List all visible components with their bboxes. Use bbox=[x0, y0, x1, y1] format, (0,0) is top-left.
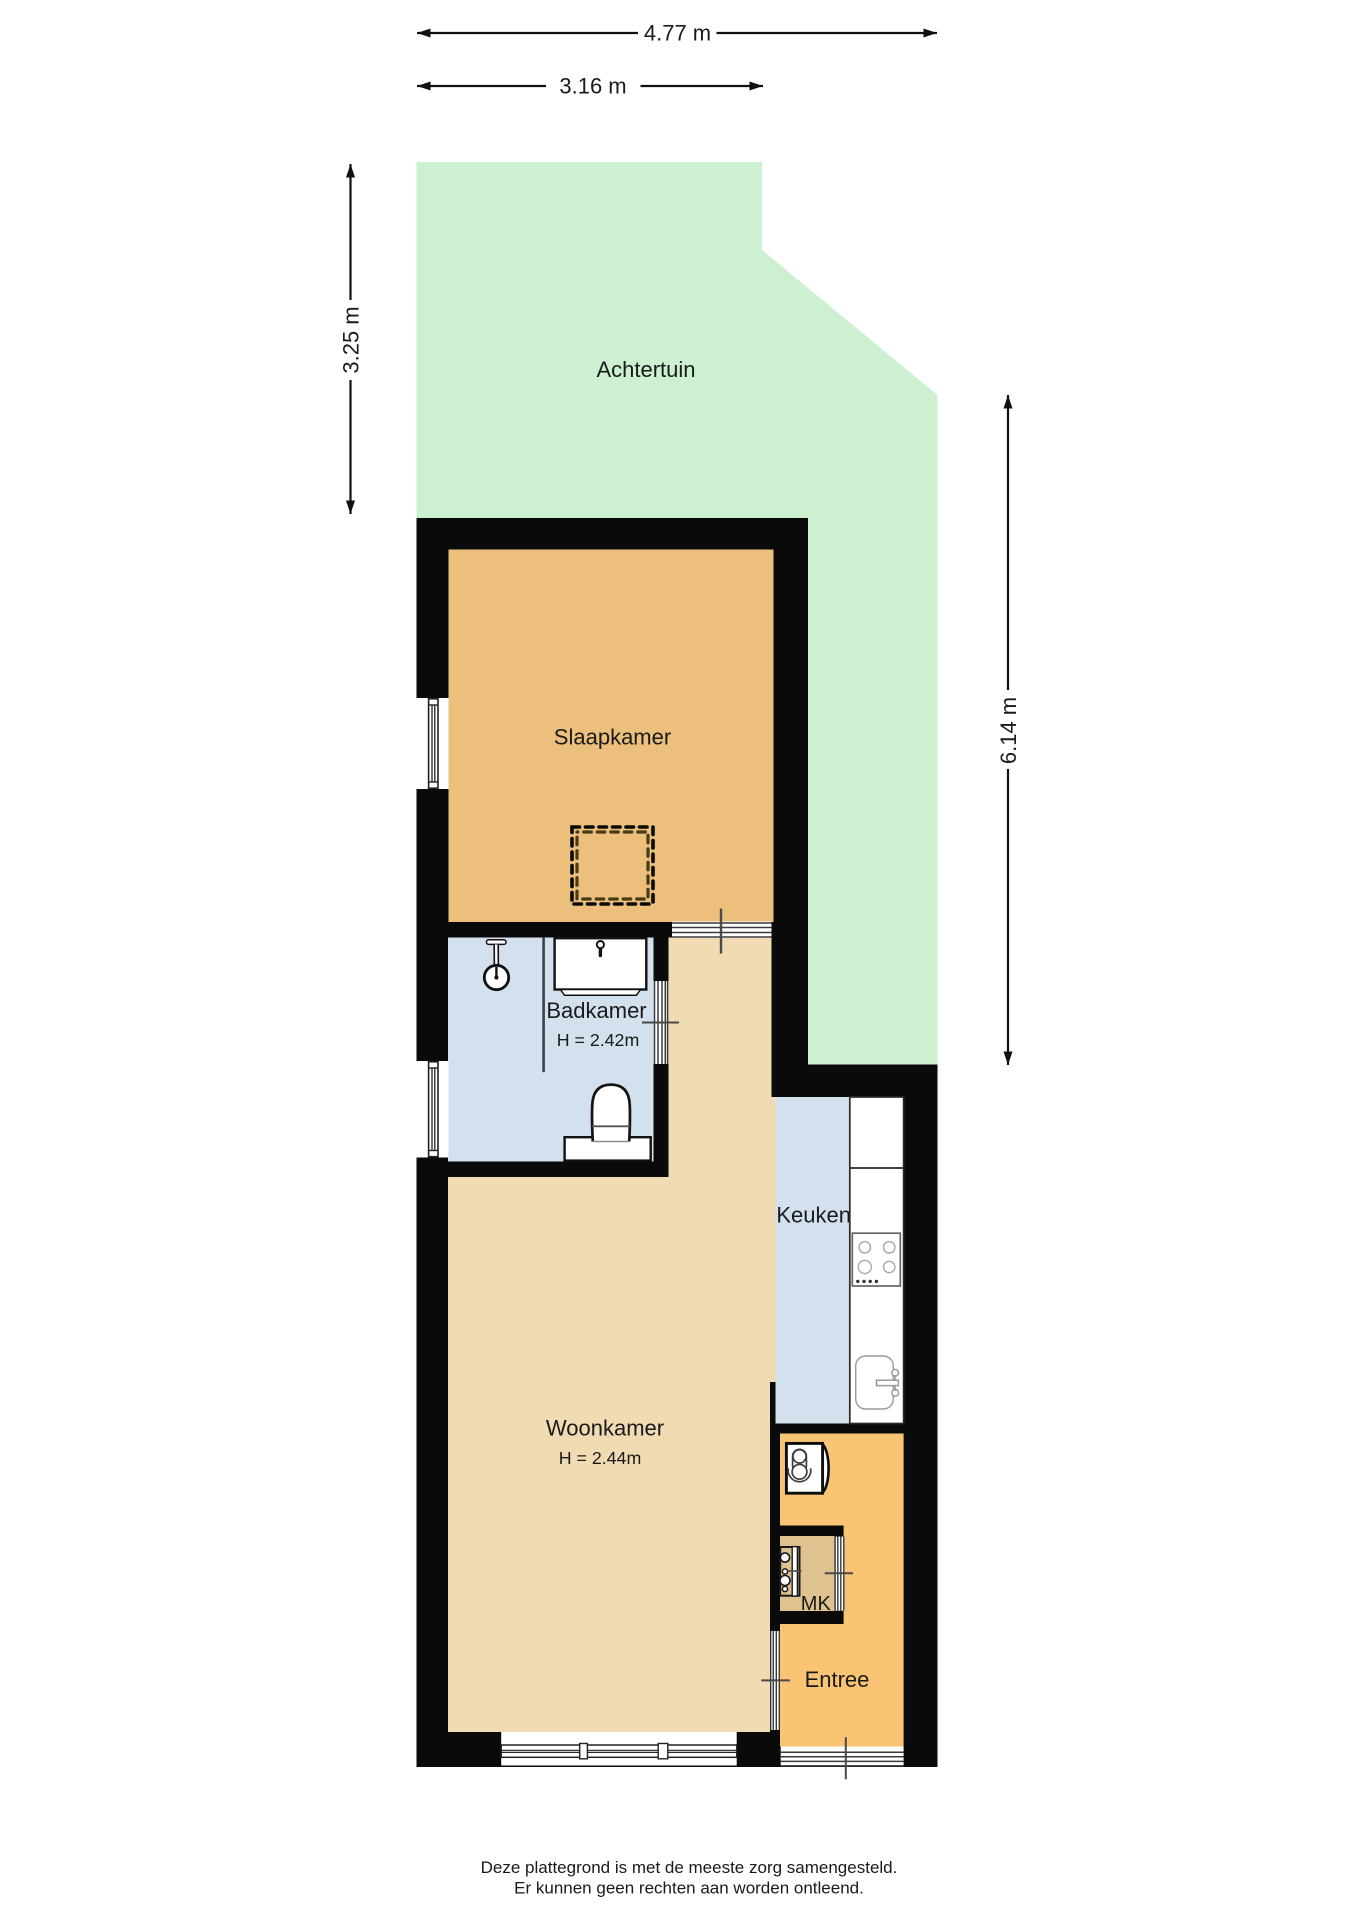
svg-text:Slaapkamer: Slaapkamer bbox=[554, 725, 671, 750]
svg-text:Er kunnen geen rechten aan wor: Er kunnen geen rechten aan worden ontlee… bbox=[514, 1879, 864, 1898]
svg-text:Keuken: Keuken bbox=[776, 1203, 851, 1228]
svg-text:3.16 m: 3.16 m bbox=[559, 74, 626, 99]
svg-text:3.25 m: 3.25 m bbox=[338, 306, 363, 373]
svg-text:H = 2.44m: H = 2.44m bbox=[559, 1448, 642, 1468]
svg-text:Entree: Entree bbox=[805, 1667, 870, 1692]
svg-text:Badkamer: Badkamer bbox=[546, 998, 646, 1023]
svg-text:4.77 m: 4.77 m bbox=[644, 21, 711, 46]
svg-text:6.14 m: 6.14 m bbox=[996, 697, 1021, 764]
svg-text:MK: MK bbox=[801, 1593, 832, 1615]
svg-text:Deze plattegrond is met de mee: Deze plattegrond is met de meeste zorg s… bbox=[481, 1858, 898, 1877]
svg-text:Achtertuin: Achtertuin bbox=[596, 357, 695, 382]
svg-text:Woonkamer: Woonkamer bbox=[546, 1416, 664, 1441]
svg-text:H = 2.42m: H = 2.42m bbox=[557, 1030, 640, 1050]
